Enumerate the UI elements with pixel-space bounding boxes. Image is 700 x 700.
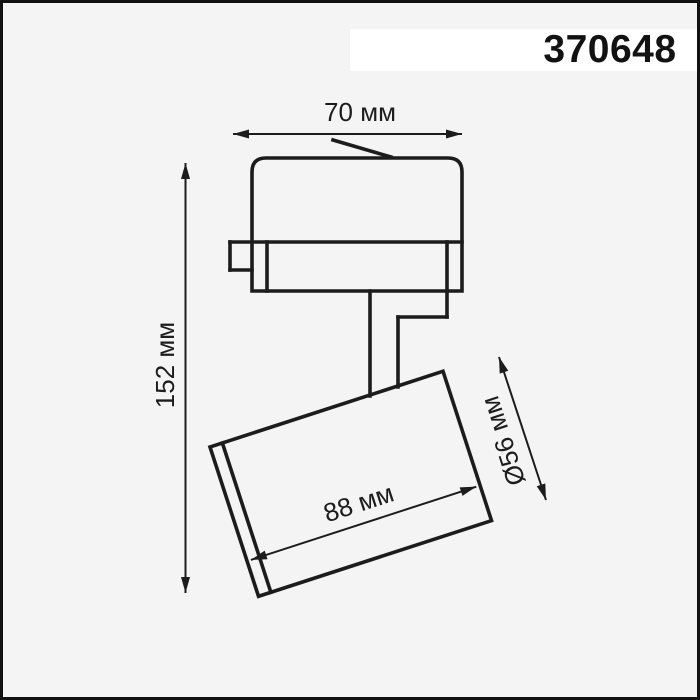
dimension-height-label: 152 мм bbox=[150, 322, 180, 408]
part-number: 370648 bbox=[543, 28, 676, 71]
dimension-width-label: 70 мм bbox=[324, 97, 396, 127]
screenshot-root: 370648 88 мм 70 м bbox=[0, 0, 700, 700]
technical-drawing-canvas: 370648 88 мм 70 м bbox=[0, 0, 700, 700]
